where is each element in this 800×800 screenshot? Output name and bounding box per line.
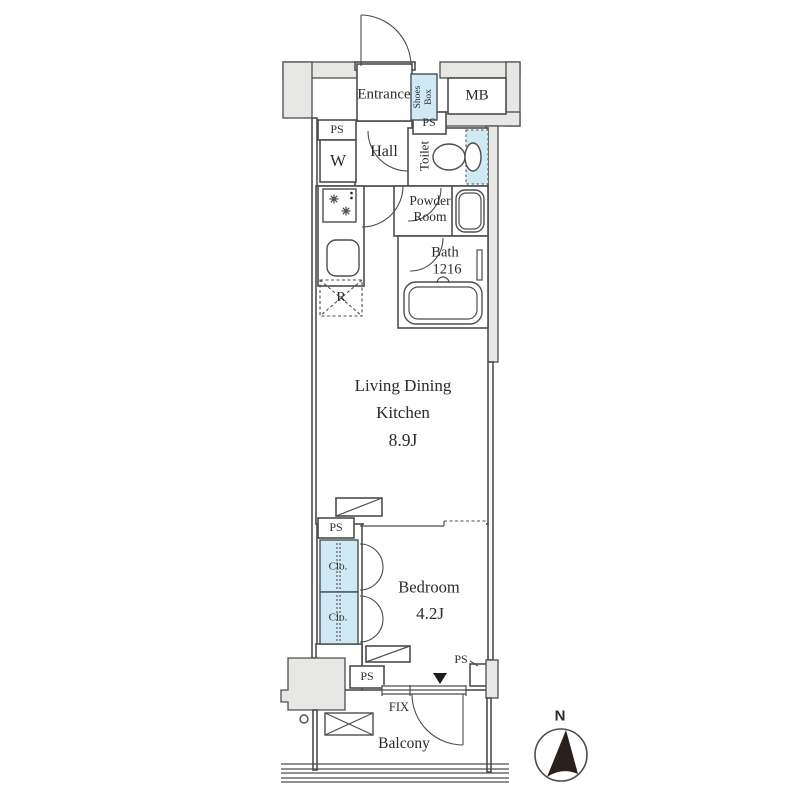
label-shoes-box: Shoes Box: [413, 79, 435, 115]
label-bath-size: 1216: [433, 262, 462, 279]
sliding-door: [360, 519, 487, 529]
label-fix-window: FIX: [389, 700, 409, 714]
label-north: N: [555, 707, 566, 724]
label-powder-room-2: Room: [413, 209, 446, 225]
entrance-door-arc: [361, 15, 411, 65]
label-ps-bottom-left: PS: [360, 670, 373, 684]
label-laundry: W: [330, 151, 346, 171]
structural-column: [281, 658, 345, 710]
ac-unit-box: [325, 713, 373, 735]
balcony-partition-right: [487, 698, 491, 772]
label-entrance: Entrance: [357, 86, 410, 103]
label-ps-left: PS: [330, 123, 343, 137]
label-ps-mid: PS: [329, 521, 342, 535]
label-balcony: Balcony: [378, 735, 430, 753]
window-band: [382, 685, 466, 696]
label-closet-lower: Clo.: [329, 612, 348, 625]
floor-plan-page: Entrance Shoes Box MB PS PS W Hall Toile…: [0, 0, 800, 800]
sink-icon: [327, 240, 359, 276]
washbasin-icon: [456, 190, 484, 232]
label-ps-bottom-right: PS: [454, 653, 467, 667]
label-ldk-1: Living Dining: [355, 376, 452, 396]
outer-wall-bottom-right: [486, 660, 498, 698]
label-bedroom: Bedroom: [398, 579, 459, 598]
label-bath: Bath: [431, 245, 458, 262]
label-ldk-2: Kitchen: [376, 403, 430, 423]
label-fridge: R: [336, 290, 345, 306]
ps-shaft-bottom-right: [470, 664, 488, 686]
toilet-icon: [433, 143, 481, 171]
label-closet-upper: Clo.: [329, 561, 348, 574]
drain-icon: [300, 715, 308, 723]
label-toilet: Toilet: [418, 141, 433, 171]
floor-plan-canvas: [0, 0, 800, 800]
label-bedroom-size: 4.2J: [416, 604, 444, 624]
stove-icon: [323, 189, 356, 222]
label-ldk-size: 8.9J: [389, 430, 418, 450]
label-hall: Hall: [370, 143, 398, 161]
north-needle: [547, 730, 578, 777]
label-meter-box: MB: [465, 87, 488, 104]
label-ps-top: PS: [422, 116, 435, 130]
label-powder-room-1: Powder: [409, 193, 450, 209]
compass: [535, 729, 587, 781]
balcony-partition-left: [313, 710, 317, 770]
